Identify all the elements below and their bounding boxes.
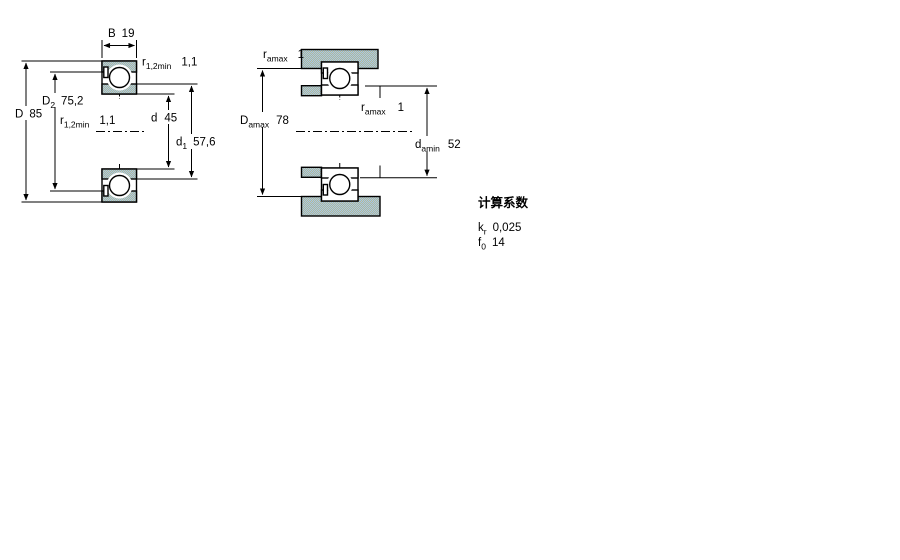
ramax-middle-label: ramax1 <box>361 102 404 117</box>
shaft-shoulder-bottom-block <box>302 167 322 177</box>
bearing-drawing-page: B19 r1,2min1,1 D85 D275,2 r1,2min1,1 d45 <box>0 0 900 560</box>
dimension-d1: d157,6 <box>137 84 219 179</box>
right-top-shield <box>323 68 327 79</box>
left-top-shield <box>104 67 108 78</box>
dimension-D2-label: D275,2 <box>42 96 83 111</box>
right-top-ball <box>330 69 350 89</box>
left-bottom-shield <box>104 186 108 197</box>
r12min-middle-label: r1,2min1,1 <box>60 115 115 130</box>
shaft-shoulder-top-block <box>302 86 322 96</box>
dimension-d-label: d45 <box>151 113 177 125</box>
right-bottom-half-section <box>322 168 359 201</box>
dimension-B-extension-lines <box>102 40 137 58</box>
right-top-half-section <box>322 62 359 95</box>
dimension-Damax: Damax78 <box>238 69 302 197</box>
left-view-bearing-section: B19 r1,2min1,1 D85 D275,2 r1,2min1,1 d45 <box>13 28 218 202</box>
dimension-Damax-extension-lines <box>257 69 302 197</box>
dimension-B: B19 <box>102 28 137 58</box>
left-top-half-section <box>102 61 137 94</box>
factor-kr: kr0,025 <box>478 222 521 237</box>
right-view-mounting-section: ramax1 Damax78 ramax1 damin52 <box>238 49 469 216</box>
dimension-D2-extension-lines <box>50 72 102 191</box>
calculation-factors-title: 计算系数 <box>478 195 529 210</box>
dimension-D-label: D85 <box>15 109 42 121</box>
factor-f0: f014 <box>478 237 505 252</box>
dimension-D2: D275,2 <box>40 72 102 191</box>
r12min-top-label: r1,2min1,1 <box>142 57 197 72</box>
dimension-D: D85 <box>13 61 102 202</box>
left-bottom-half-section <box>102 169 137 202</box>
dimension-D-extension-lines <box>22 61 103 202</box>
calculation-factors-block: 计算系数 kr0,025 f014 <box>478 195 529 252</box>
left-top-ball <box>110 68 130 88</box>
right-bottom-shield <box>323 185 327 196</box>
left-bottom-ball <box>110 176 130 196</box>
dimension-B-label: B19 <box>108 28 134 40</box>
dimension-d1-extension-lines <box>137 84 198 179</box>
ramax-top-label: ramax1 <box>263 49 304 64</box>
right-bottom-ball <box>330 175 350 195</box>
bearing-technical-drawing: B19 r1,2min1,1 D85 D275,2 r1,2min1,1 d45 <box>0 0 900 560</box>
